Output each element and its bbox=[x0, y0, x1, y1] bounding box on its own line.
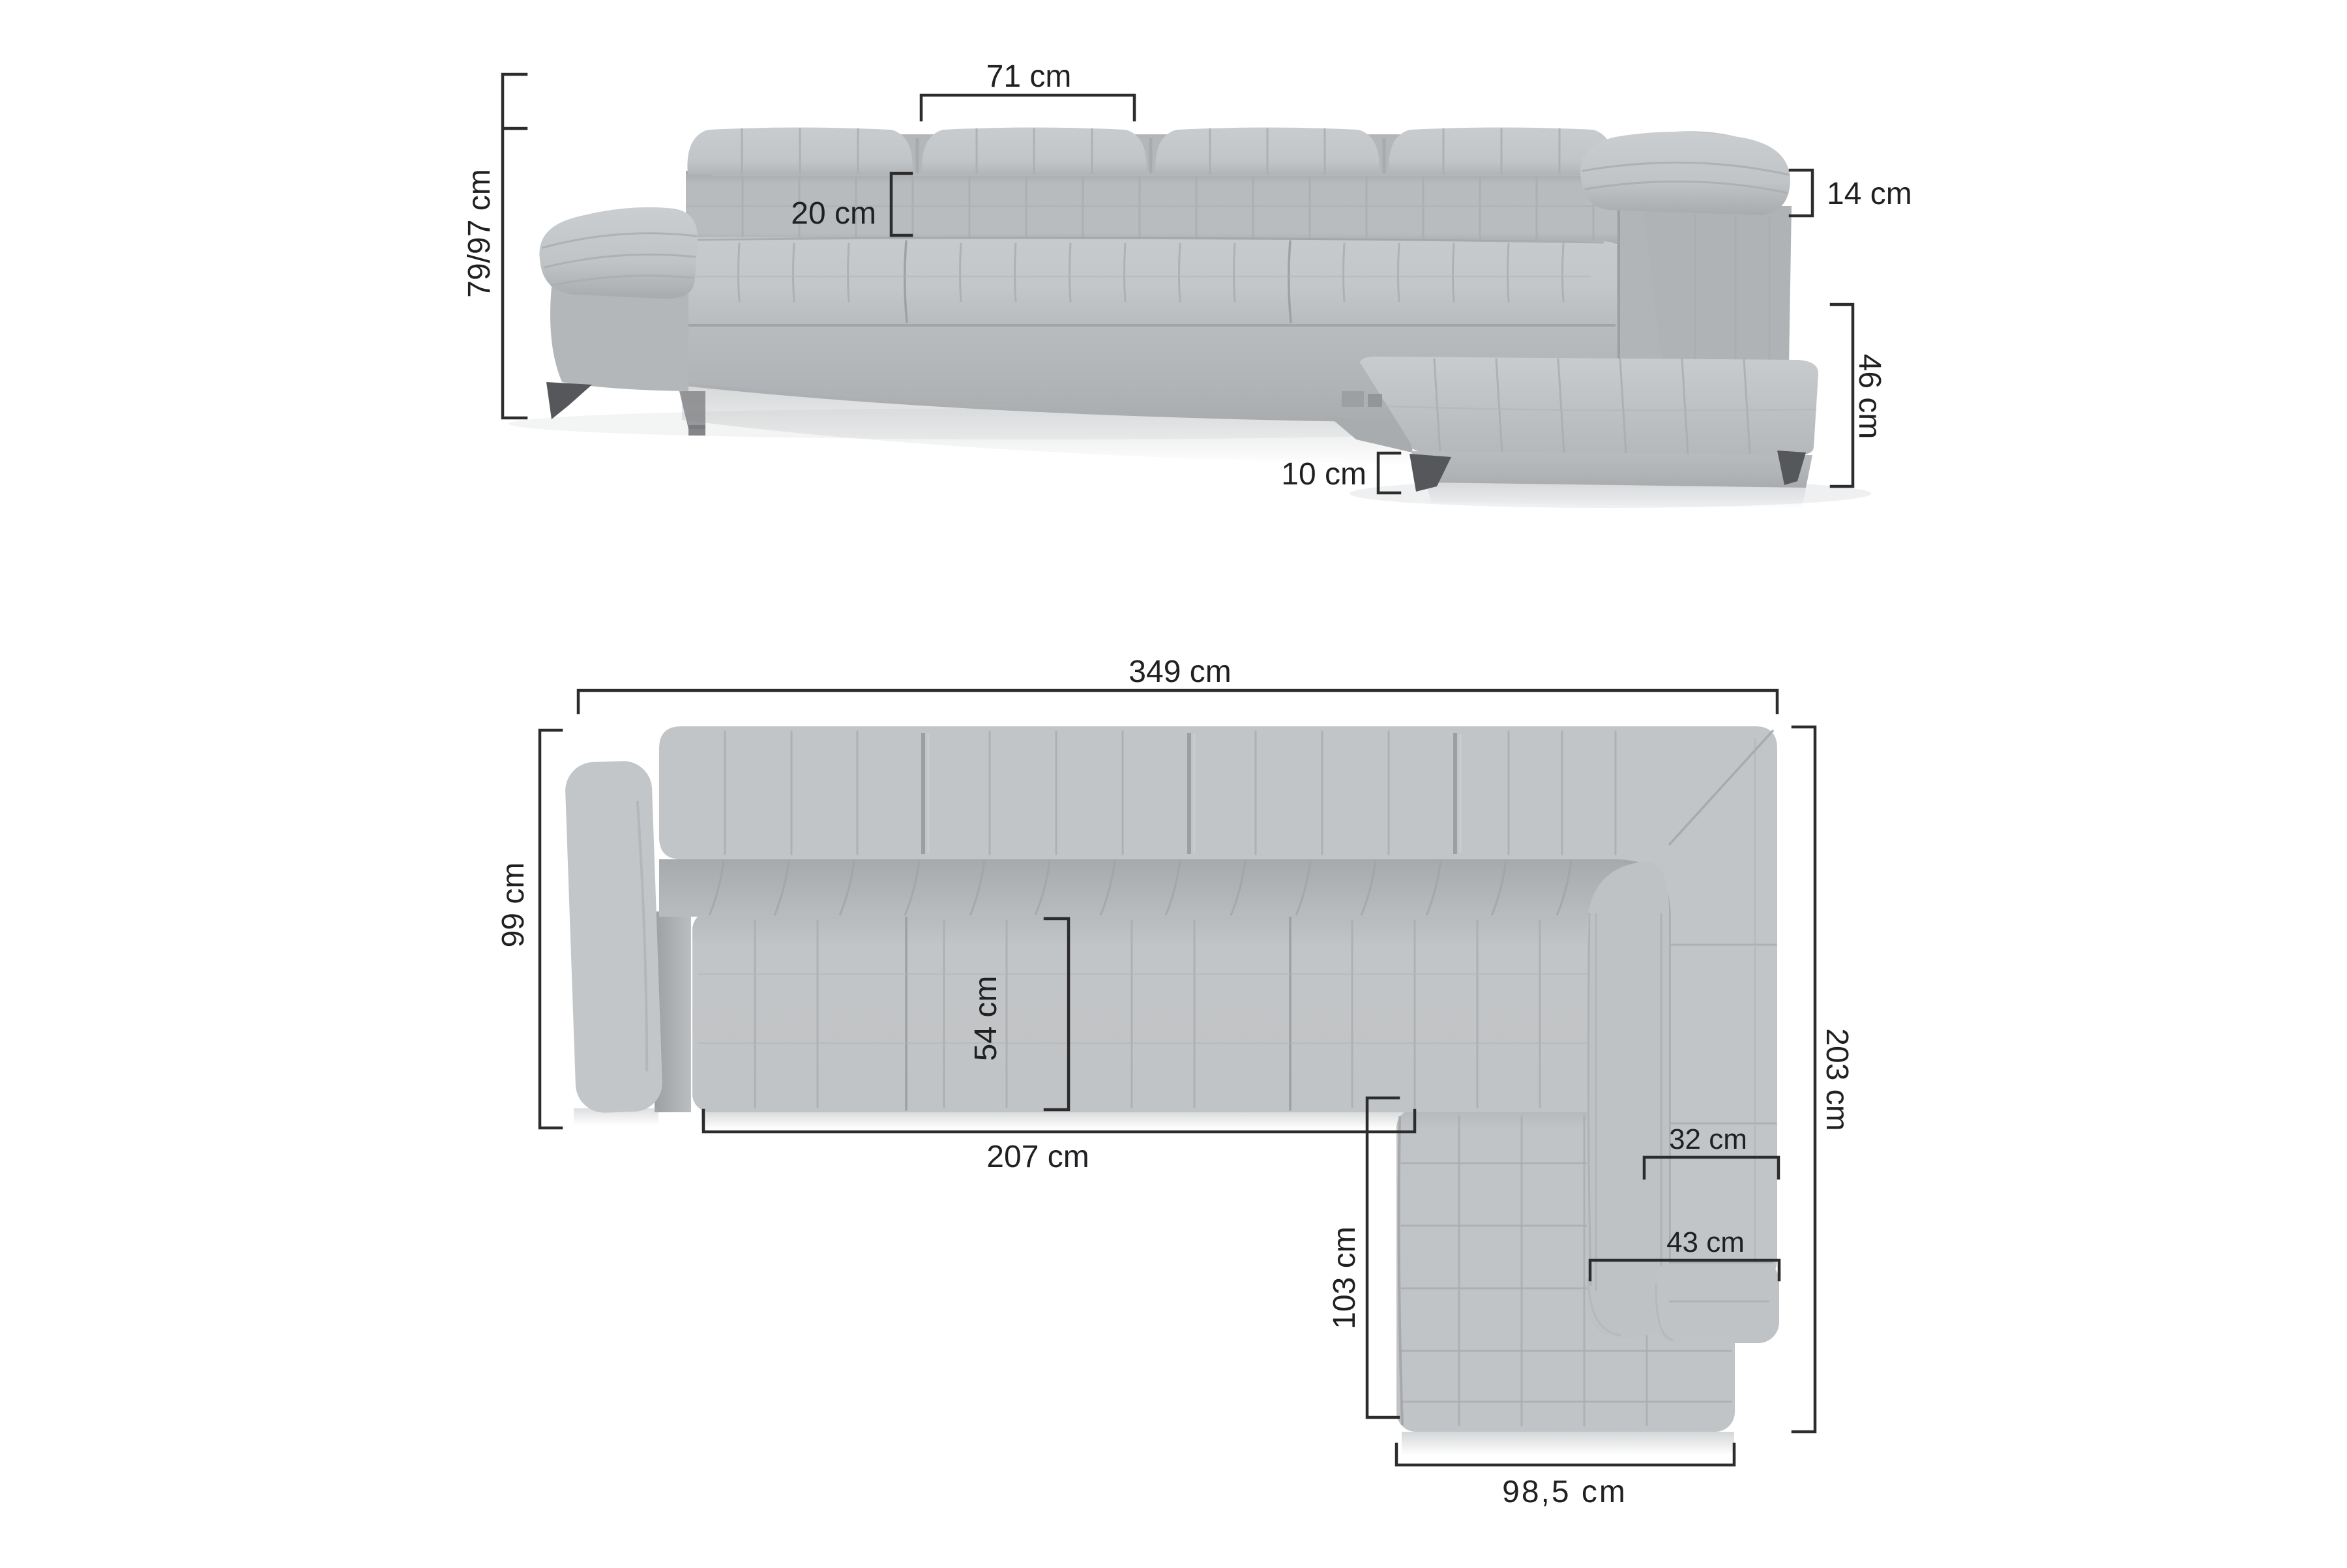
svg-text:99 cm: 99 cm bbox=[496, 863, 531, 948]
svg-text:32 cm: 32 cm bbox=[1669, 1123, 1747, 1155]
svg-text:103 cm: 103 cm bbox=[1327, 1226, 1362, 1329]
svg-text:10 cm: 10 cm bbox=[1281, 457, 1366, 492]
svg-text:79/97 cm: 79/97 cm bbox=[462, 169, 497, 297]
svg-text:203 cm: 203 cm bbox=[1820, 1028, 1854, 1131]
svg-text:20 cm: 20 cm bbox=[791, 196, 876, 231]
svg-text:349 cm: 349 cm bbox=[1129, 655, 1231, 689]
svg-text:98,5 cm: 98,5 cm bbox=[1502, 1475, 1627, 1509]
svg-text:54 cm: 54 cm bbox=[969, 976, 1003, 1061]
svg-text:14 cm: 14 cm bbox=[1827, 177, 1912, 211]
svg-text:43 cm: 43 cm bbox=[1666, 1226, 1745, 1258]
svg-text:46 cm: 46 cm bbox=[1852, 354, 1887, 439]
svg-text:71 cm: 71 cm bbox=[986, 59, 1072, 94]
svg-text:207 cm: 207 cm bbox=[986, 1140, 1089, 1174]
